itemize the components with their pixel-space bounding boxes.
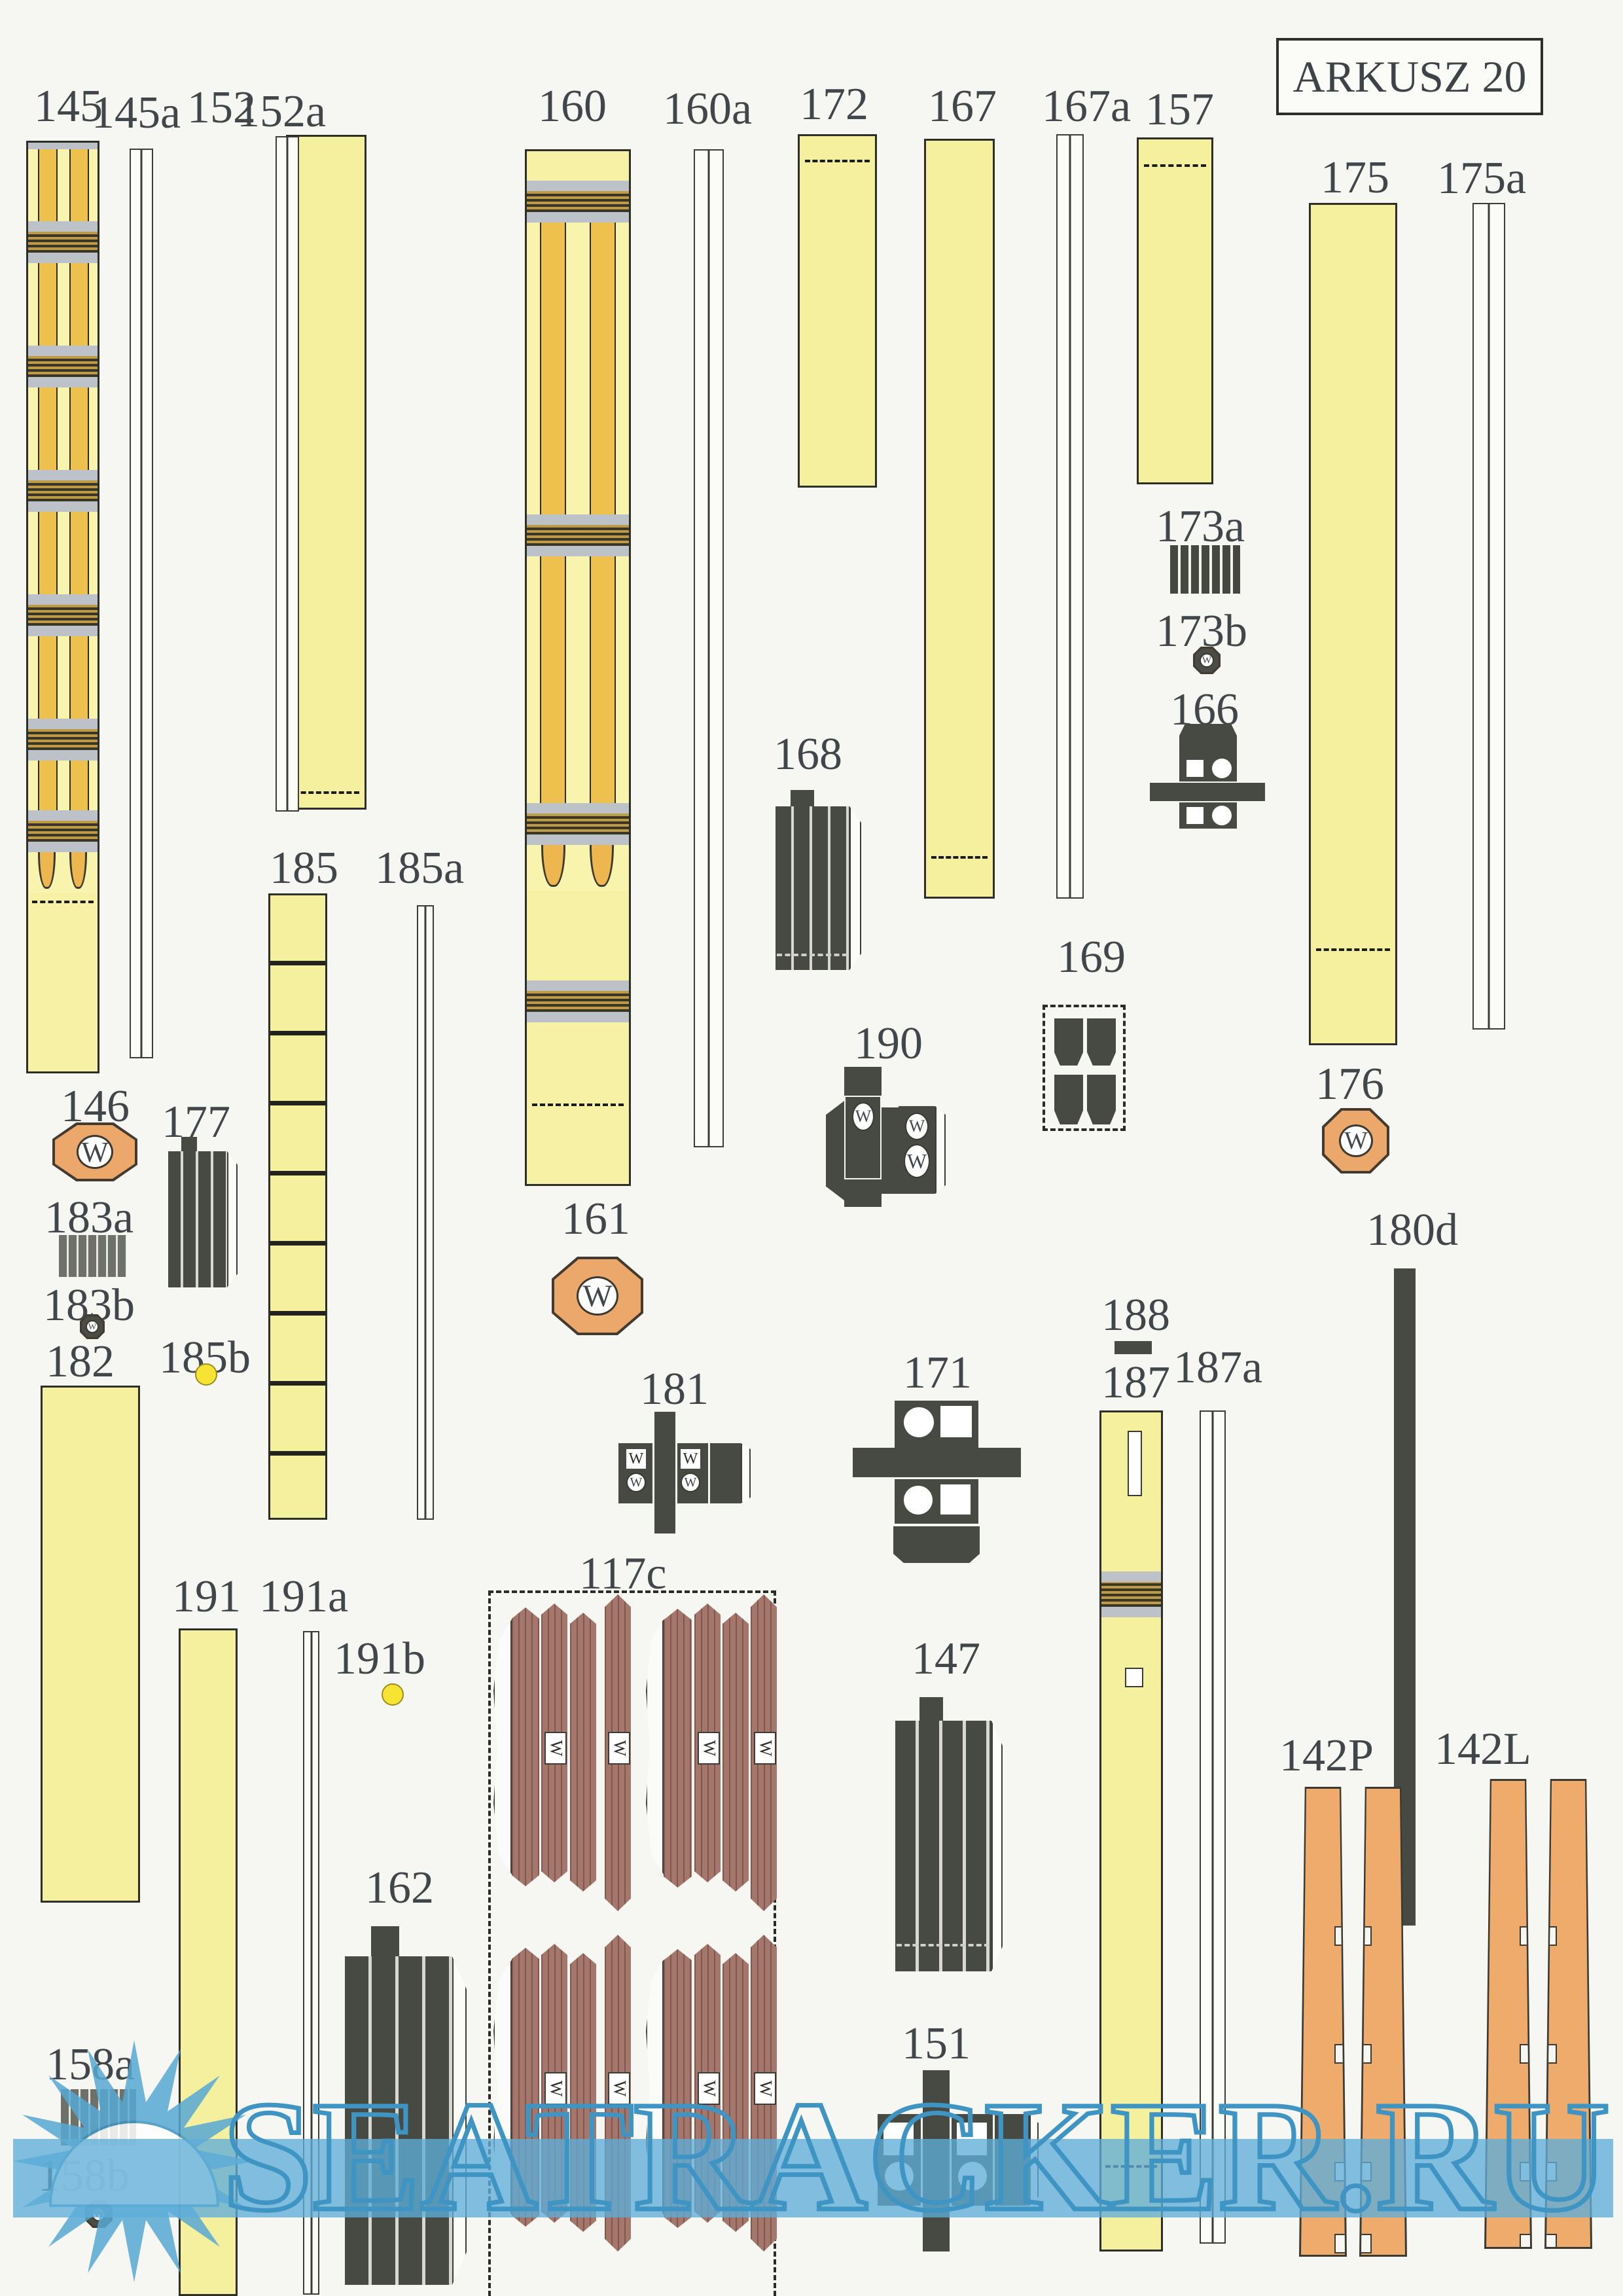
part-191b-label: 191b	[334, 1636, 425, 1682]
part-168-label: 168	[774, 732, 842, 778]
part-160a-label: 160a	[663, 86, 752, 132]
part-187-label: 187	[1101, 1360, 1170, 1406]
w-square: W	[754, 1732, 776, 1765]
panel-separator	[708, 1443, 710, 1503]
part-171-top-panel	[893, 1399, 980, 1449]
part-145-band	[28, 221, 98, 263]
part-166-band	[1179, 802, 1237, 829]
w-disc: W	[681, 1473, 700, 1492]
part-190-connector	[882, 1107, 899, 1194]
part-187a-label: 187a	[1173, 1345, 1262, 1391]
part-190-center: W	[844, 1096, 882, 1179]
watermark-text: SEATRACKER.RU	[223, 2069, 1610, 2243]
part-185a-label: 185a	[375, 846, 464, 891]
w-disc: W	[577, 1276, 618, 1316]
part-175-body	[1309, 203, 1397, 1045]
part-162-tab	[371, 1926, 399, 1958]
part-160-band	[527, 514, 629, 556]
part-185-label: 185	[270, 846, 338, 891]
part-173a-body	[1170, 545, 1240, 594]
square-hole	[940, 1484, 971, 1515]
part-160-tongue-row	[527, 845, 629, 891]
notch	[1520, 1926, 1531, 1946]
part-181-flap	[741, 1443, 751, 1503]
part-169-piece	[1087, 1018, 1116, 1066]
fold-line	[931, 856, 988, 859]
part-175a-label: 175a	[1437, 156, 1526, 202]
w-mark: W	[755, 1740, 775, 1757]
plank	[570, 1613, 596, 1892]
watermark-text-layer: SEATRACKER.RU	[216, 2049, 1623, 2258]
part-169-label: 169	[1057, 935, 1126, 980]
w-octagon-173b: W	[1193, 647, 1221, 674]
w-octagon-183b: W	[80, 1314, 105, 1339]
w-square: W	[626, 1449, 646, 1469]
part-145-tongue	[38, 852, 56, 889]
part-175a-body	[1472, 203, 1505, 1030]
part-172-label: 172	[800, 82, 868, 128]
part-145-body	[26, 141, 99, 1073]
part-142P-label: 142P	[1279, 1733, 1374, 1779]
part-176-label: 176	[1315, 1062, 1384, 1107]
part-172-body	[798, 134, 877, 488]
part-171-crossbar	[853, 1448, 1021, 1477]
w-disc: W	[1200, 653, 1214, 668]
part-160-tongue	[590, 845, 614, 887]
w-square: W	[698, 1732, 720, 1765]
square-hole	[940, 1406, 972, 1437]
part-166-bar	[1150, 783, 1265, 801]
part-147-flap	[991, 1721, 1003, 1971]
part-168-tab	[791, 790, 814, 808]
w-square: W	[681, 1449, 700, 1469]
part-185b-body	[195, 1363, 217, 1386]
sheet-title: ARKUSZ 20	[1293, 51, 1526, 103]
circle-hole	[904, 1407, 934, 1437]
part-162-label: 162	[365, 1865, 434, 1911]
part-160-body	[525, 149, 631, 1186]
plank	[664, 1609, 692, 1888]
w-disc: W	[86, 1320, 99, 1333]
part-147-tab	[919, 1697, 943, 1722]
part-191a-label: 191a	[259, 1574, 348, 1620]
fold-line	[1144, 164, 1206, 167]
w-octagon-146: W	[52, 1122, 137, 1181]
w-mark: W	[546, 1740, 565, 1757]
part-167-label: 167	[928, 84, 997, 130]
w-disc: W	[905, 1113, 929, 1140]
w-octagon-176: W	[1322, 1108, 1389, 1174]
part-167a-label: 167a	[1042, 84, 1131, 130]
part-160-stripes	[527, 181, 629, 845]
plank	[722, 1613, 749, 1892]
w-mark: W	[582, 1278, 612, 1314]
part-190-label: 190	[854, 1021, 923, 1067]
part-160-band	[527, 803, 629, 845]
part-167a-body	[1056, 134, 1084, 899]
w-mark: W	[1344, 1126, 1368, 1155]
w-disc: W	[1339, 1124, 1373, 1157]
circle-hole	[904, 1486, 933, 1515]
plank-flap	[493, 1619, 512, 1874]
part-191b-body	[382, 1683, 404, 1706]
part-168-flap	[849, 806, 861, 970]
part-190-right-panel: W W	[899, 1106, 935, 1194]
part-160-band	[527, 980, 629, 1022]
plank-flap	[646, 1619, 664, 1874]
part-190-right-flap	[935, 1106, 946, 1194]
part-160-band	[527, 181, 629, 223]
part-187-hole	[1125, 1668, 1143, 1687]
part-145-band	[28, 810, 98, 852]
notch	[1360, 1926, 1372, 1946]
part-145-band	[28, 346, 98, 387]
part-160-tongue	[541, 845, 565, 887]
part-145-tongue	[69, 852, 87, 889]
notch	[1545, 1926, 1557, 1946]
w-mark: W	[81, 1136, 109, 1169]
w-mark: W	[855, 1107, 872, 1126]
w-disc: W	[626, 1473, 646, 1492]
part-171-label: 171	[903, 1350, 972, 1396]
w-mark: W	[88, 1321, 96, 1332]
plank	[512, 1607, 539, 1886]
part-169-piece	[1054, 1075, 1083, 1124]
part-187-band	[1101, 1571, 1161, 1617]
part-166-cap	[1179, 724, 1237, 736]
part-152a-label: 152a	[237, 89, 326, 135]
w-mark: W	[629, 1450, 644, 1468]
part-152a-body	[276, 136, 299, 812]
part-142L-label: 142L	[1435, 1727, 1531, 1772]
part-175-label: 175	[1321, 155, 1389, 201]
notch	[1334, 1926, 1346, 1946]
part-183a-body	[59, 1235, 126, 1277]
w-disc: W	[852, 1102, 874, 1131]
part-181-crossbar	[652, 1412, 677, 1534]
part-168-body	[776, 806, 849, 970]
part-145-band	[28, 594, 98, 636]
part-190-top-tab	[844, 1067, 882, 1096]
fold-line	[293, 791, 359, 794]
part-147-body	[895, 1721, 991, 1971]
part-157-label: 157	[1145, 87, 1214, 133]
part-182-label: 182	[46, 1339, 115, 1385]
part-145-top-band	[28, 143, 98, 149]
square-hole	[1186, 807, 1204, 824]
fold-line	[1316, 948, 1390, 951]
part-183a-label: 183a	[45, 1195, 134, 1241]
part-171-mid-panel	[893, 1478, 980, 1525]
circle-hole	[1212, 759, 1232, 778]
part-145-band	[28, 719, 98, 761]
part-191-label: 191	[172, 1574, 241, 1620]
fold-line	[777, 954, 847, 956]
fold-line	[805, 160, 870, 162]
fold-line	[532, 1103, 624, 1106]
w-mark: W	[630, 1475, 643, 1490]
part-173a-label: 173a	[1156, 504, 1245, 550]
w-mark: W	[699, 1740, 719, 1757]
part-169-piece	[1087, 1075, 1116, 1124]
part-169-piece	[1054, 1018, 1083, 1066]
part-160-label: 160	[538, 84, 607, 130]
circle-hole	[1212, 806, 1232, 825]
part-157-body	[1137, 137, 1213, 484]
w-octagon-161: W	[552, 1257, 643, 1335]
w-disc: W	[904, 1144, 930, 1178]
w-mark: W	[1202, 655, 1211, 666]
part-160a-body	[694, 149, 724, 1147]
part-166-block	[1179, 736, 1237, 755]
w-square: W	[544, 1732, 567, 1765]
part-145a-label: 145a	[92, 90, 181, 136]
part-145-band	[28, 470, 98, 512]
part-188-label: 188	[1101, 1293, 1170, 1338]
part-187-slot	[1128, 1431, 1142, 1496]
part-167-body	[924, 139, 995, 899]
w-mark: W	[609, 1740, 629, 1757]
w-square: W	[608, 1732, 630, 1765]
w-mark: W	[907, 1149, 927, 1174]
square-hole	[1186, 760, 1204, 777]
part-181-label: 181	[640, 1367, 709, 1412]
part-180d-label: 180d	[1366, 1208, 1458, 1253]
part-145-tongue-row	[28, 852, 98, 893]
part-145a-body	[130, 149, 153, 1058]
part-177-tab	[181, 1137, 197, 1153]
part-177-flap	[227, 1151, 238, 1287]
w-mark: W	[683, 1450, 698, 1468]
part-171-bottom-panel	[893, 1526, 980, 1563]
fold-line	[897, 1944, 990, 1946]
part-182-body	[41, 1386, 140, 1903]
part-188-body	[1115, 1341, 1152, 1354]
part-177-body	[168, 1151, 227, 1287]
w-mark: W	[685, 1475, 697, 1490]
part-147-label: 147	[912, 1636, 980, 1682]
part-190-left-flap	[826, 1101, 844, 1200]
part-181-body: W W W W	[618, 1443, 741, 1503]
part-169-group	[1043, 1005, 1126, 1131]
w-mark: W	[909, 1117, 925, 1136]
part-190-bottom-tab	[844, 1179, 882, 1207]
part-185-body	[268, 893, 327, 1520]
part-185a-body	[417, 905, 434, 1520]
sheet-number-box: ARKUSZ 20	[1276, 38, 1543, 115]
model-sheet: ARKUSZ 20 145 145a 152 152a 160 160a 172…	[0, 0, 1623, 2296]
part-166-band	[1179, 755, 1237, 781]
part-161-label: 161	[562, 1196, 630, 1242]
fold-line	[32, 901, 94, 903]
w-disc: W	[77, 1135, 113, 1169]
